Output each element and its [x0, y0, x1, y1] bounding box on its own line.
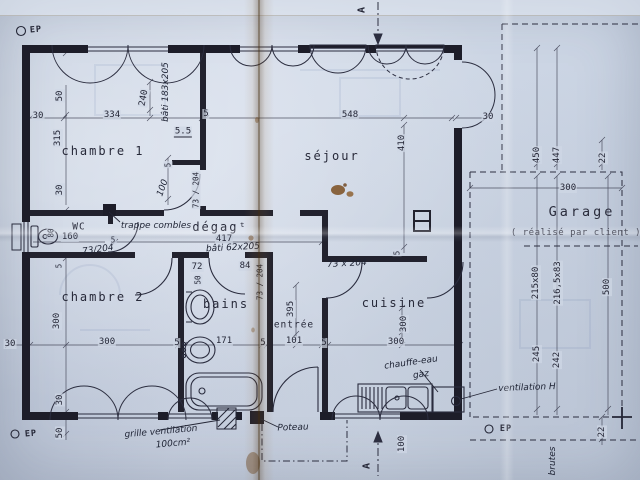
dim-wall-5-top: 5: [202, 109, 209, 119]
dim-garage-450: 450: [532, 146, 542, 164]
dim-wc-depth: 80: [47, 227, 56, 238]
dim-wc-door: 73/204: [82, 243, 115, 257]
dim-wc-width: 160: [61, 232, 79, 242]
section-marker-a-bottom: A: [362, 463, 373, 469]
dim-wall-5-c: 5: [320, 338, 327, 348]
dim-garage-door-216x83: 216,5x83: [553, 260, 563, 305]
note-100cm2: 100cm²: [155, 438, 190, 451]
note-brutes: brutes: [548, 447, 558, 476]
room-label-entree: entrée: [274, 320, 314, 331]
room-label-chambre1: chambre 1: [61, 144, 144, 158]
dim-garage-width: 300: [559, 183, 577, 193]
note-ep-bottom-right: EP: [500, 424, 512, 434]
dim-left-30: 30: [55, 184, 65, 197]
dim-porch-100: 100: [397, 435, 407, 453]
dim-closet-240: 240: [137, 88, 150, 108]
note-ep-bottom-left: EP: [24, 428, 37, 439]
dim-garage-242: 242: [552, 351, 562, 369]
dim-door-offset-5: 5: [164, 162, 173, 169]
note-ep-top-left: EP: [29, 24, 42, 35]
dim-wall-5-b: 5: [259, 338, 266, 348]
dim-window-offset-50: 50: [55, 90, 65, 103]
dim-chambre2-width: 300: [98, 337, 116, 347]
dim-sejour-wall-5: 5: [393, 250, 402, 257]
dim-mid-left-30: 30: [4, 339, 17, 349]
dim-right-wall-30: 30: [482, 112, 495, 122]
room-label-bains: bains: [203, 297, 249, 311]
dim-bains-72: 72: [191, 262, 204, 272]
dim-wall-5-a: 5: [173, 338, 180, 348]
note-poteau: Poteau: [277, 422, 309, 433]
dim-garage-22-bottom: 22: [597, 426, 607, 439]
dim-cuisine-width: 300: [387, 337, 405, 347]
dim-step-5-5: 5.5: [174, 127, 192, 138]
room-label-degagement: dégagᵗ: [192, 220, 247, 234]
dim-bains-door: 73 / 204: [256, 263, 265, 301]
dim-garage-447: 447: [552, 146, 562, 164]
dim-entree-depth: 395: [286, 300, 296, 318]
dim-door-offset-100: 100: [155, 178, 170, 198]
dim-chambre2-depth: 300: [52, 312, 62, 330]
dim-bains-50: 50: [194, 274, 203, 285]
dim-bains-width: 171: [215, 336, 233, 346]
dim-chambre1-width: 334: [103, 110, 121, 120]
text-labels: 3033455483050315302405.5410510073 / 2044…: [0, 0, 640, 480]
dim-bottom-50: 50: [55, 427, 65, 440]
dim-bottom-30: 30: [55, 394, 65, 407]
garage-note: ( réalisé par client ): [511, 228, 640, 238]
dim-chambre1-door: 73 / 204: [192, 171, 201, 209]
dim-cuisine-depth: 300: [399, 315, 409, 333]
room-label-garage: Garage: [549, 204, 616, 220]
dim-entree-width: 101: [285, 336, 303, 346]
note-chauffe-eau: chauffe-eau: [384, 354, 439, 371]
dim-garage-22-top: 22: [598, 152, 608, 165]
note-trappe-combles: trappe combles: [121, 221, 191, 231]
room-label-wc: WC: [72, 222, 85, 233]
dim-chambre2-wall-5: 5: [55, 263, 64, 270]
room-label-chambre2: chambre 2: [61, 290, 144, 304]
section-marker-a-top: A: [357, 7, 368, 13]
room-label-sejour: séjour: [304, 149, 359, 163]
note-73x204-cuisine: 73 x 204: [327, 258, 367, 270]
note-ventilation-h: ventilation H: [498, 382, 556, 394]
floor-plan-scan: 3033455483050315302405.5410510073 / 2044…: [0, 0, 640, 480]
note-bati-183x205: bâti 183x205: [161, 62, 171, 122]
dim-bains-84: 84: [239, 261, 252, 271]
dim-sejour-width: 548: [341, 110, 359, 120]
dim-garage-245: 245: [532, 345, 542, 363]
room-label-cuisine: cuisine: [362, 296, 427, 310]
dim-garage-door-215x80: 215x80: [531, 266, 541, 301]
dim-left-offset-top: 30: [32, 111, 45, 121]
note-gaz: gaz: [412, 369, 429, 381]
dim-garage-depth: 500: [602, 278, 612, 296]
note-bati-62x205: bâti 62x205: [206, 242, 261, 255]
dim-sejour-depth: 410: [397, 134, 407, 152]
